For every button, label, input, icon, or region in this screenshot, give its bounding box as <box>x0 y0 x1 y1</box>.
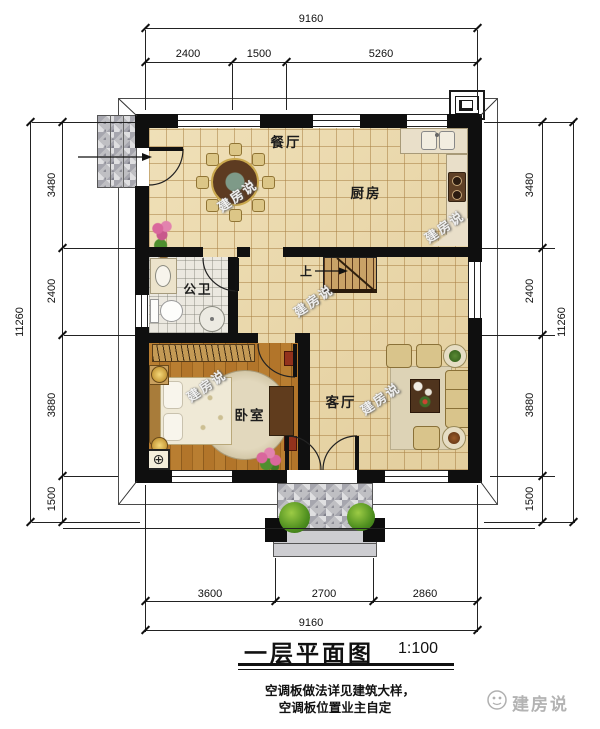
dim-left-total: 11260 <box>0 299 43 345</box>
dimension-line <box>64 248 135 249</box>
potted-plant <box>448 432 460 444</box>
dimension-line <box>145 485 146 632</box>
toilet-tank <box>150 299 159 323</box>
drawing-scale: 1:100 <box>398 640 438 658</box>
corner-table: ⊕ <box>147 449 170 470</box>
stove-burner <box>452 176 462 186</box>
window-kitchen-right <box>407 114 447 128</box>
tv-cabinet <box>269 386 294 436</box>
brand-logo-icon <box>485 688 509 712</box>
chimney-flue <box>459 100 473 111</box>
dimension-line <box>32 522 140 523</box>
dimension-line <box>477 30 478 110</box>
wall-top <box>360 114 407 128</box>
stove-burner <box>452 190 462 200</box>
dimension-line <box>64 335 135 336</box>
wall-dining-hall <box>149 247 203 257</box>
dim-bottom-seg: 2860 <box>395 588 455 600</box>
room-label-bathroom: 公卫 <box>183 279 212 298</box>
dimension-line <box>145 30 146 110</box>
window-bathroom <box>135 295 149 327</box>
kitchen-sink <box>439 131 455 150</box>
dimension-line <box>232 64 233 110</box>
dim-right-seg: 3880 <box>507 382 553 428</box>
bed-pillow <box>163 381 183 409</box>
dim-top-seg: 2400 <box>158 48 218 60</box>
side-porch-step-line <box>110 115 111 188</box>
dim-bottom-seg: 2700 <box>294 588 354 600</box>
bush <box>347 503 375 531</box>
wall-bottom <box>357 470 385 483</box>
bath-sink <box>155 265 171 287</box>
window-dining <box>178 114 260 128</box>
title-underline-thick <box>238 663 454 666</box>
wall-right <box>468 114 482 262</box>
dimension-line <box>275 558 276 603</box>
wall-top <box>260 114 313 128</box>
porch-step-line <box>273 543 377 544</box>
speaker-box <box>284 351 297 366</box>
dim-top-seg: 5260 <box>351 48 411 60</box>
wall-bottom <box>232 470 287 483</box>
window-kitchen-left <box>313 114 360 128</box>
armchair <box>413 426 440 450</box>
title-underline-thin <box>238 669 454 670</box>
dimension-line <box>30 122 31 522</box>
dining-chair <box>262 176 275 189</box>
brand-logo-text: 建房说 <box>512 690 569 715</box>
dimension-line <box>145 630 477 631</box>
side-porch-tiles <box>97 115 137 188</box>
dim-top-total: 9160 <box>281 13 341 25</box>
dining-chair <box>252 153 265 166</box>
dimension-line <box>145 28 477 29</box>
window-bedroom <box>172 470 232 483</box>
dim-right-seg: 1500 <box>507 476 553 522</box>
armchair <box>416 344 442 368</box>
dim-bottom-total: 9160 <box>281 617 341 629</box>
dimension-line <box>63 528 535 529</box>
dimension-line <box>482 335 555 336</box>
kitchen-faucet <box>435 133 439 137</box>
potted-plant <box>449 350 461 362</box>
dining-chair <box>252 199 265 212</box>
window-living <box>385 470 448 483</box>
dim-tick <box>569 517 578 526</box>
nightstand-lamp <box>151 366 168 383</box>
dimension-line <box>373 558 374 603</box>
wall-bedroom-right <box>298 333 310 470</box>
dim-top-seg: 1500 <box>229 48 289 60</box>
floor-plan-canvas: ⊕ <box>0 0 600 729</box>
dimension-line <box>145 62 477 63</box>
wall-left <box>135 327 149 483</box>
dim-right-seg: 3480 <box>507 162 553 208</box>
dimension-line <box>477 485 478 632</box>
dimension-line <box>484 122 575 123</box>
room-label-living: 客厅 <box>326 391 357 411</box>
dimension-line <box>32 122 135 123</box>
wardrobe <box>152 344 255 362</box>
dimension-line <box>482 248 555 249</box>
room-label-bedroom: 卧室 <box>235 404 266 424</box>
dimension-line <box>64 476 118 477</box>
dim-tick <box>473 625 482 634</box>
dimension-line <box>286 64 287 110</box>
bed-pillow <box>163 413 183 441</box>
dimension-line <box>62 122 63 522</box>
dining-chair <box>196 176 209 189</box>
dimension-line <box>573 122 574 522</box>
note-line-2: 空调板位置业主自定 <box>279 697 392 716</box>
bedroom-flowers <box>253 447 283 471</box>
wall-left <box>135 186 149 295</box>
dim-right-total: 11260 <box>539 299 585 345</box>
speaker-box <box>284 436 297 451</box>
wall-right <box>468 318 482 483</box>
dimension-line <box>490 476 555 477</box>
wall-left <box>135 114 149 148</box>
toilet-bowl <box>160 300 183 322</box>
side-porch-step-line2 <box>123 115 124 188</box>
dim-bottom-seg: 3600 <box>180 588 240 600</box>
dimension-line <box>484 522 575 523</box>
dining-chair <box>229 209 242 222</box>
stair-up-label: 上 <box>300 263 312 280</box>
room-label-dining: 餐厅 <box>271 131 302 151</box>
window-stairhall <box>468 262 482 318</box>
dim-left-seg: 3880 <box>29 382 75 428</box>
dim-left-seg: 1500 <box>29 476 75 522</box>
dim-left-seg: 3480 <box>29 162 75 208</box>
dining-chair <box>229 143 242 156</box>
wall-bedroom-top <box>149 333 258 343</box>
armchair <box>386 344 412 368</box>
coffee-table <box>410 379 440 413</box>
room-label-kitchen: 厨房 <box>351 182 382 202</box>
dimension-line <box>145 601 477 602</box>
dimension-line <box>542 122 543 522</box>
wall-bathroom-right <box>228 257 238 343</box>
shower-center <box>210 317 214 321</box>
wall-dining-hall <box>237 247 250 257</box>
wall-kitchen-hall <box>283 247 468 257</box>
